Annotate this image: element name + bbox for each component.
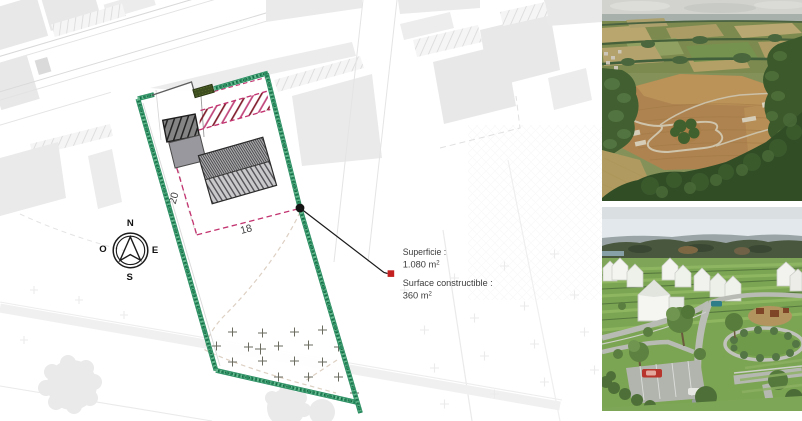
svg-text:Surface constructible :: Surface constructible :: [403, 278, 493, 288]
svg-text:N: N: [127, 218, 134, 229]
svg-text:O: O: [99, 244, 106, 255]
svg-text:E: E: [152, 245, 158, 256]
svg-text:Superficie :: Superficie :: [403, 247, 447, 257]
svg-text:S: S: [127, 272, 133, 283]
svg-text:1.080 m2: 1.080 m2: [403, 260, 441, 270]
svg-text:360 m2: 360 m2: [403, 290, 433, 300]
